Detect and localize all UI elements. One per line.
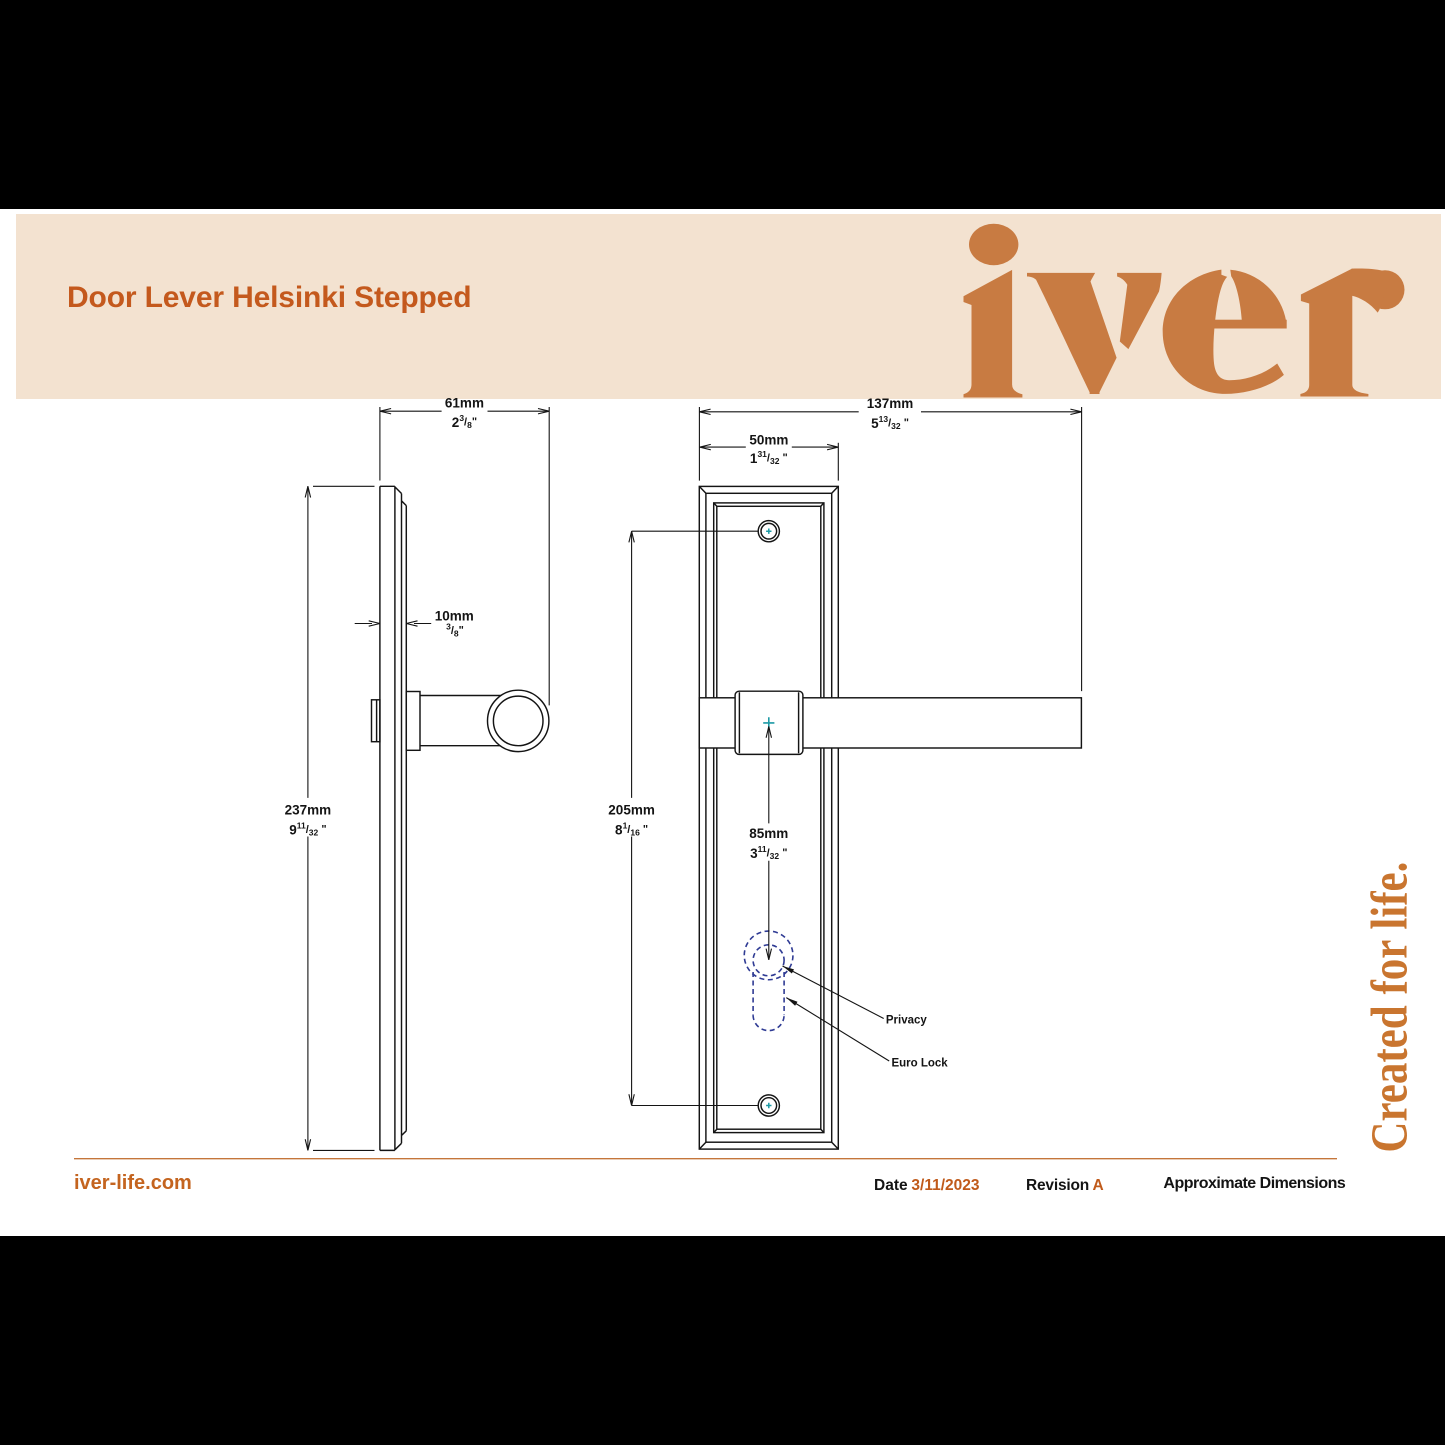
svg-text:A: A xyxy=(1092,1177,1103,1194)
svg-text:Created for life.: Created for life. xyxy=(1361,862,1418,1153)
svg-text:23/8": 23/8" xyxy=(452,413,477,430)
svg-text:Date: Date xyxy=(874,1177,908,1194)
svg-text:61mm: 61mm xyxy=(445,396,484,411)
svg-text:205mm: 205mm xyxy=(608,802,655,817)
svg-text:10mm: 10mm xyxy=(435,609,474,624)
svg-text:iver-life.com: iver-life.com xyxy=(74,1172,192,1194)
svg-text:85mm: 85mm xyxy=(749,826,788,841)
svg-text:311/32 ": 311/32 " xyxy=(750,844,787,861)
svg-text:Privacy: Privacy xyxy=(886,1015,928,1027)
svg-text:81/16 ": 81/16 " xyxy=(615,820,648,837)
svg-text:50mm: 50mm xyxy=(749,433,788,448)
svg-text:513/32 ": 513/32 " xyxy=(871,414,909,431)
svg-text:237mm: 237mm xyxy=(285,802,332,817)
svg-text:3/8": 3/8" xyxy=(446,621,464,638)
svg-text:131/32 ": 131/32 " xyxy=(750,449,788,466)
svg-text:Euro Lock: Euro Lock xyxy=(891,1057,948,1069)
svg-text:911/32 ": 911/32 " xyxy=(289,820,326,837)
svg-text:3/11/2023: 3/11/2023 xyxy=(911,1177,979,1194)
svg-text:Revision: Revision xyxy=(1026,1177,1089,1194)
svg-text:Approximate Dimensions: Approximate Dimensions xyxy=(1163,1175,1346,1192)
svg-text:137mm: 137mm xyxy=(867,396,914,411)
